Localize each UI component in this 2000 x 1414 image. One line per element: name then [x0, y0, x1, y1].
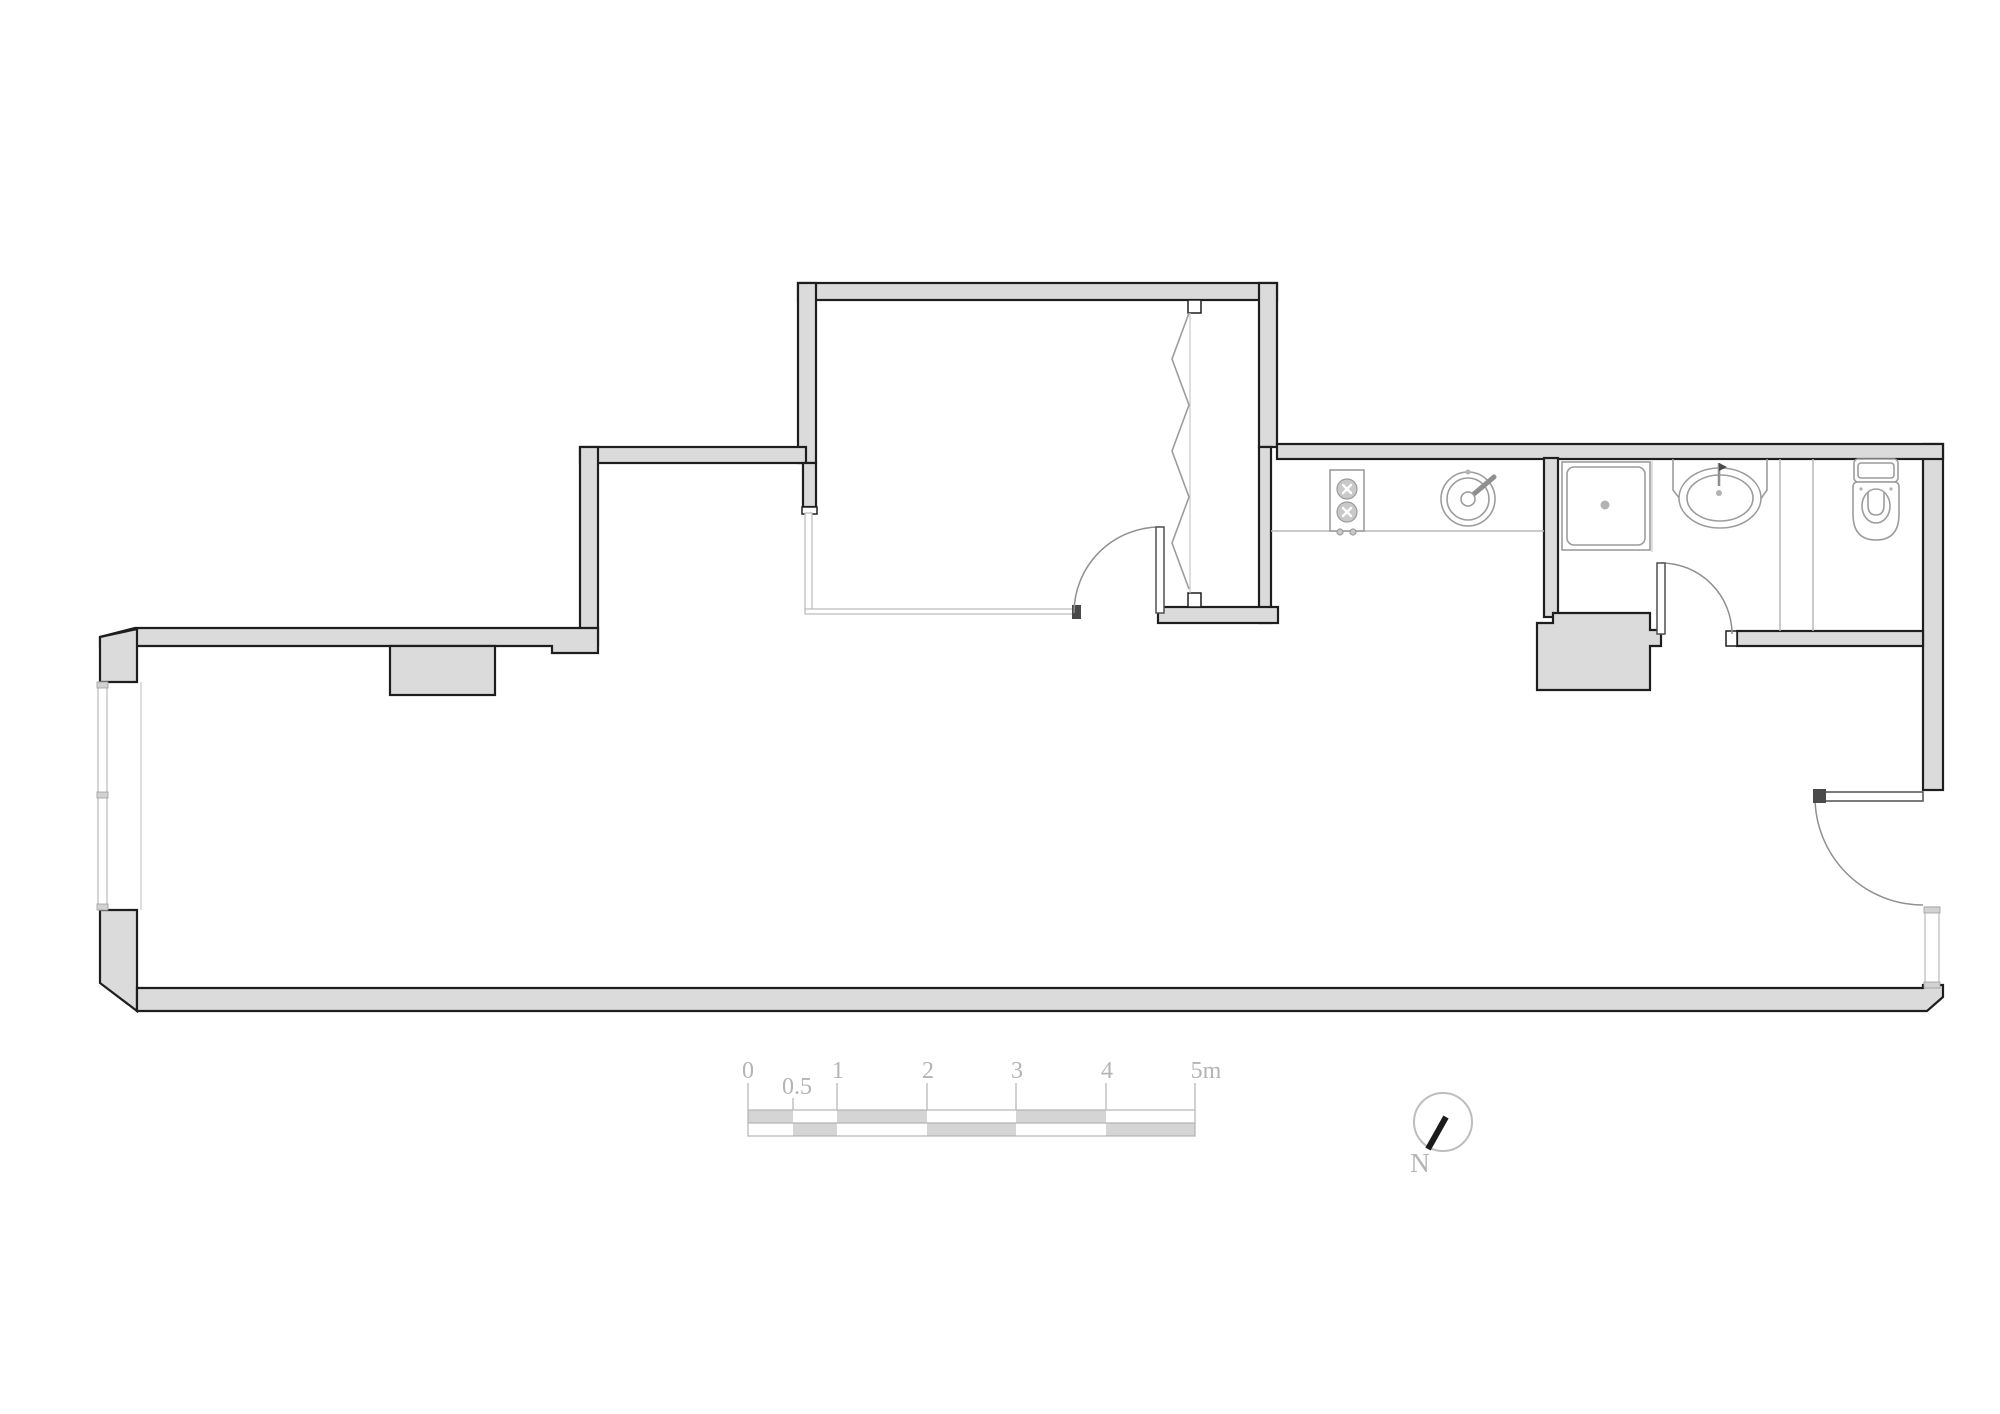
kitchen-left-wall	[1259, 447, 1271, 623]
wardrobe-niche-top-jamb	[1188, 300, 1201, 313]
wardrobe	[1172, 313, 1190, 593]
bedroom-left-wall-upper	[798, 283, 816, 463]
scale-label-0: 0	[742, 1058, 754, 1084]
alcove-left-wall	[580, 447, 598, 646]
sidelight-cap-top	[1924, 907, 1940, 913]
entrance-door-end-cap	[1813, 789, 1826, 803]
left-top-pier	[100, 629, 137, 682]
bottom-wall	[137, 985, 1943, 1011]
entrance-sidelight-window	[1924, 907, 1940, 988]
round-sink-icon	[1441, 470, 1495, 527]
left-bottom-pier	[100, 910, 137, 1011]
shower-drain	[1601, 501, 1610, 510]
scale-label-4: 4	[1101, 1058, 1113, 1084]
bath-duct-block	[1537, 613, 1661, 690]
north-label: N	[1410, 1148, 1430, 1178]
bedroom-left-wall-lower	[803, 463, 816, 507]
washbasin-icon	[1673, 459, 1767, 528]
bedroom-door-swing-arc	[1074, 527, 1160, 613]
walls	[100, 283, 1943, 1011]
bathroom-door-leaf	[1657, 563, 1665, 634]
wardrobe-niche-bottom-jamb	[1188, 593, 1201, 607]
scale-label-2: 2	[922, 1058, 934, 1084]
sidelight-cap-bottom	[1924, 982, 1940, 988]
bedroom-top-wall	[798, 283, 1277, 300]
bedroom-partition-vertical	[805, 513, 812, 611]
toilet-icon	[1853, 459, 1899, 540]
left-window	[97, 682, 108, 910]
kitchen-bath-top-wall	[1277, 444, 1943, 459]
scale-label-5m: 5m	[1191, 1058, 1222, 1084]
right-wall-upper	[1923, 444, 1943, 790]
cooktop-knob-right	[1350, 529, 1356, 535]
kitchen	[1271, 470, 1544, 536]
scale-label-1: 1	[832, 1058, 844, 1084]
cooktop-icon	[1330, 470, 1364, 535]
entrance-door	[1813, 789, 1923, 905]
scale-label-0-5: 0.5	[782, 1074, 812, 1100]
bathroom-door	[1657, 563, 1732, 634]
bathroom	[1562, 459, 1899, 550]
scale-label-3: 3	[1011, 1058, 1023, 1084]
bath-bottom-wall	[1737, 631, 1923, 646]
window-cap-top	[97, 682, 108, 688]
bedroom-partition-horizontal	[805, 609, 1073, 614]
kitchen-right-wall	[1544, 458, 1558, 617]
wing-top-wall	[580, 447, 806, 463]
sink-tap-hole	[1466, 470, 1471, 475]
bedroom-door	[1074, 527, 1164, 613]
north-arrow: N	[1410, 1093, 1472, 1178]
sidelight-frame	[1925, 907, 1939, 988]
bathroom-door-swing-arc	[1661, 563, 1732, 634]
window-mullion	[97, 792, 108, 798]
floor-plan-canvas: 0 0.5 1 2 3 4 5m N	[0, 0, 2000, 1414]
bedroom-right-wall	[1259, 283, 1277, 447]
doors	[1074, 527, 1923, 905]
living-room-top-wall	[100, 628, 598, 653]
sink-faucet-hub	[1461, 492, 1475, 506]
shower-tray-icon	[1562, 462, 1650, 550]
entrance-door-leaf	[1819, 792, 1923, 801]
north-needle	[1428, 1117, 1446, 1149]
wardrobe-folding-door-icon	[1172, 313, 1189, 589]
toilet-bowl	[1853, 482, 1899, 540]
scale-bar: 0 0.5 1 2 3 4 5m	[742, 1058, 1222, 1136]
cooktop-knob-left	[1337, 529, 1343, 535]
basin-tap-hole	[1716, 490, 1722, 496]
bedroom-door-leaf	[1156, 527, 1164, 613]
floor-plan-drawing: 0 0.5 1 2 3 4 5m N	[0, 0, 2000, 1414]
entrance-door-swing-arc	[1815, 797, 1923, 905]
pier-column	[390, 646, 495, 695]
bedroom-bottom-wall	[1158, 607, 1278, 623]
window-cap-bottom	[97, 904, 108, 910]
